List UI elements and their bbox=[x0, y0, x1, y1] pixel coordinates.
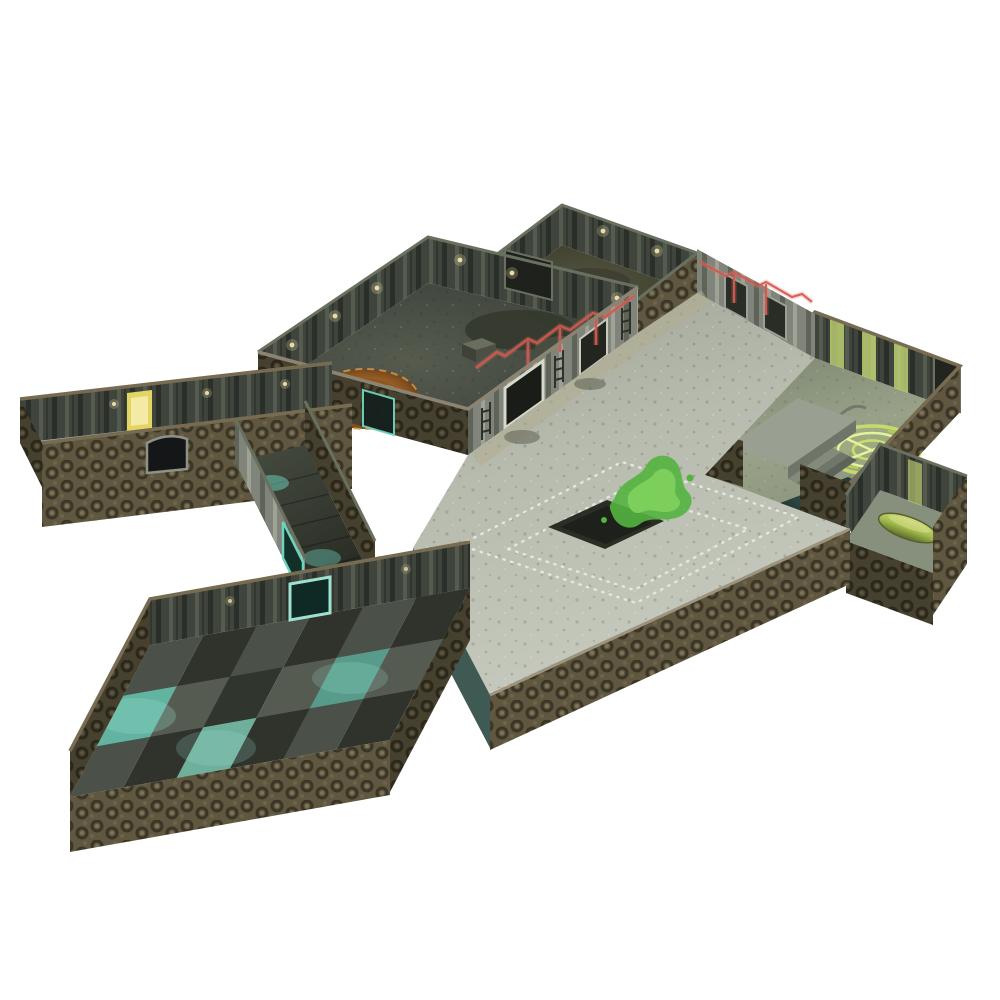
terrain-render bbox=[0, 0, 1000, 1000]
vault-teal-door bbox=[290, 577, 330, 620]
product-photo bbox=[0, 0, 1000, 1000]
junction-door bbox=[363, 390, 394, 435]
checker-vault-room bbox=[70, 542, 470, 852]
capsule-alcove bbox=[846, 444, 967, 625]
wing-door-arch bbox=[147, 436, 187, 473]
alcove-glow-panel bbox=[908, 459, 922, 506]
